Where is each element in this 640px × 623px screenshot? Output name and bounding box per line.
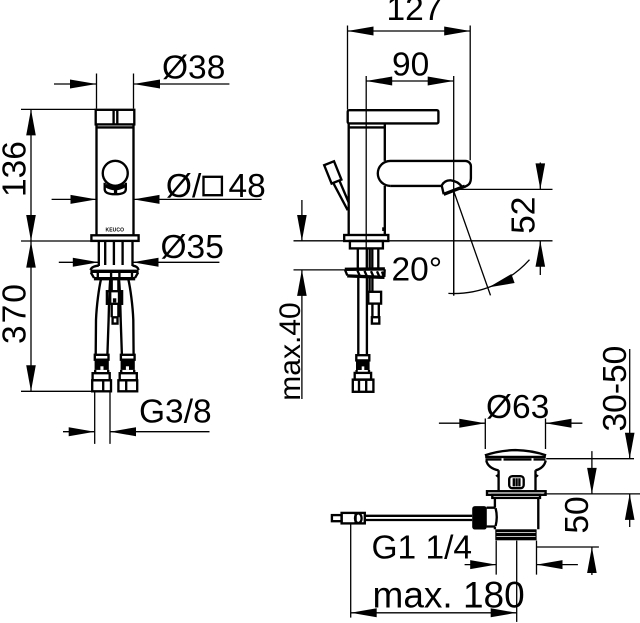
svg-text:Ø63: Ø63: [486, 389, 549, 426]
svg-text:90: 90: [392, 47, 429, 84]
svg-text:20°: 20°: [392, 251, 443, 288]
svg-text:136: 136: [0, 141, 34, 197]
svg-text:48: 48: [229, 168, 266, 205]
svg-text:370: 370: [0, 282, 34, 344]
svg-text:G3/8: G3/8: [139, 394, 212, 431]
svg-text:G1 1/4: G1 1/4: [372, 529, 473, 566]
svg-text:Ø35: Ø35: [161, 229, 224, 266]
svg-text:KEUCO: KEUCO: [106, 228, 125, 234]
svg-text:52: 52: [506, 197, 543, 234]
svg-text:max. 180: max. 180: [373, 574, 525, 615]
svg-text:127: 127: [387, 0, 443, 28]
svg-text:Ø/: Ø/: [166, 168, 202, 205]
svg-text:Ø38: Ø38: [162, 50, 225, 87]
svg-text:30-50: 30-50: [597, 346, 634, 432]
svg-text:max.40: max.40: [274, 302, 307, 400]
svg-text:50: 50: [559, 496, 596, 533]
